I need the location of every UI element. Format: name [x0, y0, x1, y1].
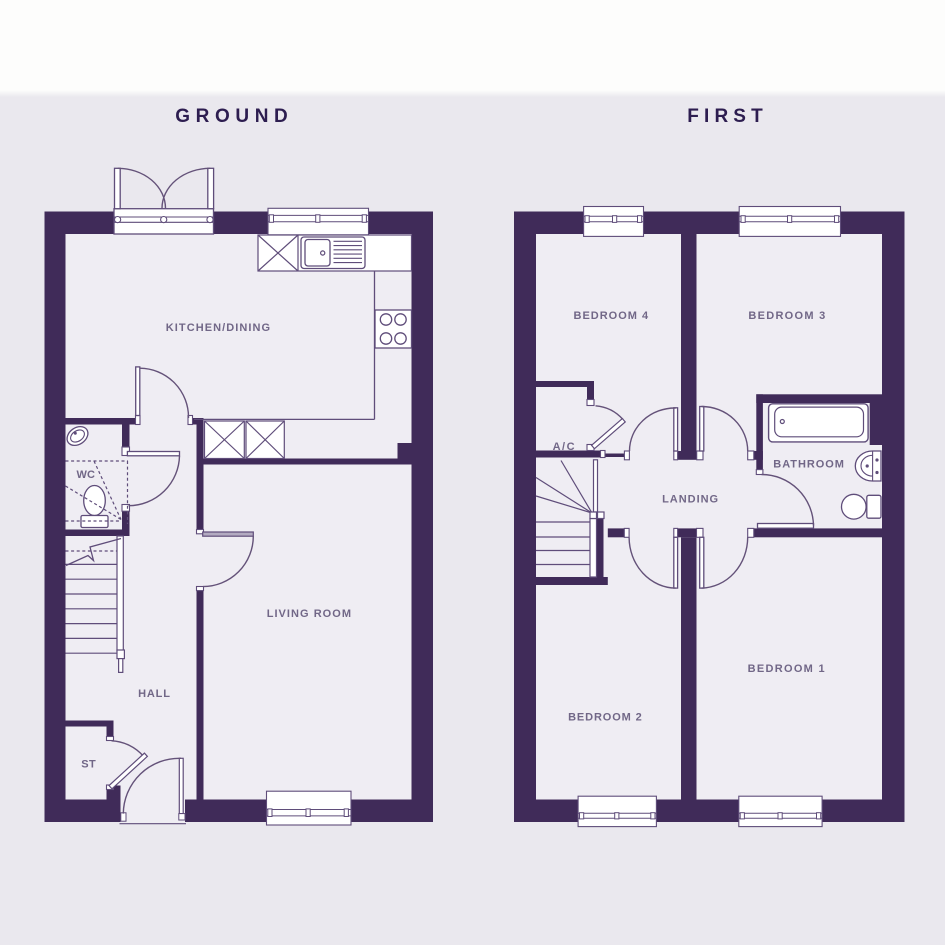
svg-text:WC: WC — [77, 469, 96, 481]
svg-text:BEDROOM 3: BEDROOM 3 — [748, 310, 826, 322]
svg-text:HALL: HALL — [138, 688, 171, 700]
svg-text:ST: ST — [81, 759, 96, 771]
svg-text:LIVING ROOM: LIVING ROOM — [267, 608, 352, 620]
svg-text:BEDROOM 2: BEDROOM 2 — [568, 712, 643, 724]
svg-text:A/C: A/C — [553, 441, 576, 453]
svg-text:BEDROOM 4: BEDROOM 4 — [574, 310, 650, 322]
svg-text:BEDROOM 1: BEDROOM 1 — [748, 663, 826, 675]
svg-text:BATHROOM: BATHROOM — [773, 459, 845, 471]
svg-text:FIRST: FIRST — [687, 106, 768, 127]
svg-text:LANDING: LANDING — [662, 494, 719, 506]
svg-text:KITCHEN/DINING: KITCHEN/DINING — [166, 322, 271, 334]
svg-text:GROUND: GROUND — [175, 106, 293, 127]
